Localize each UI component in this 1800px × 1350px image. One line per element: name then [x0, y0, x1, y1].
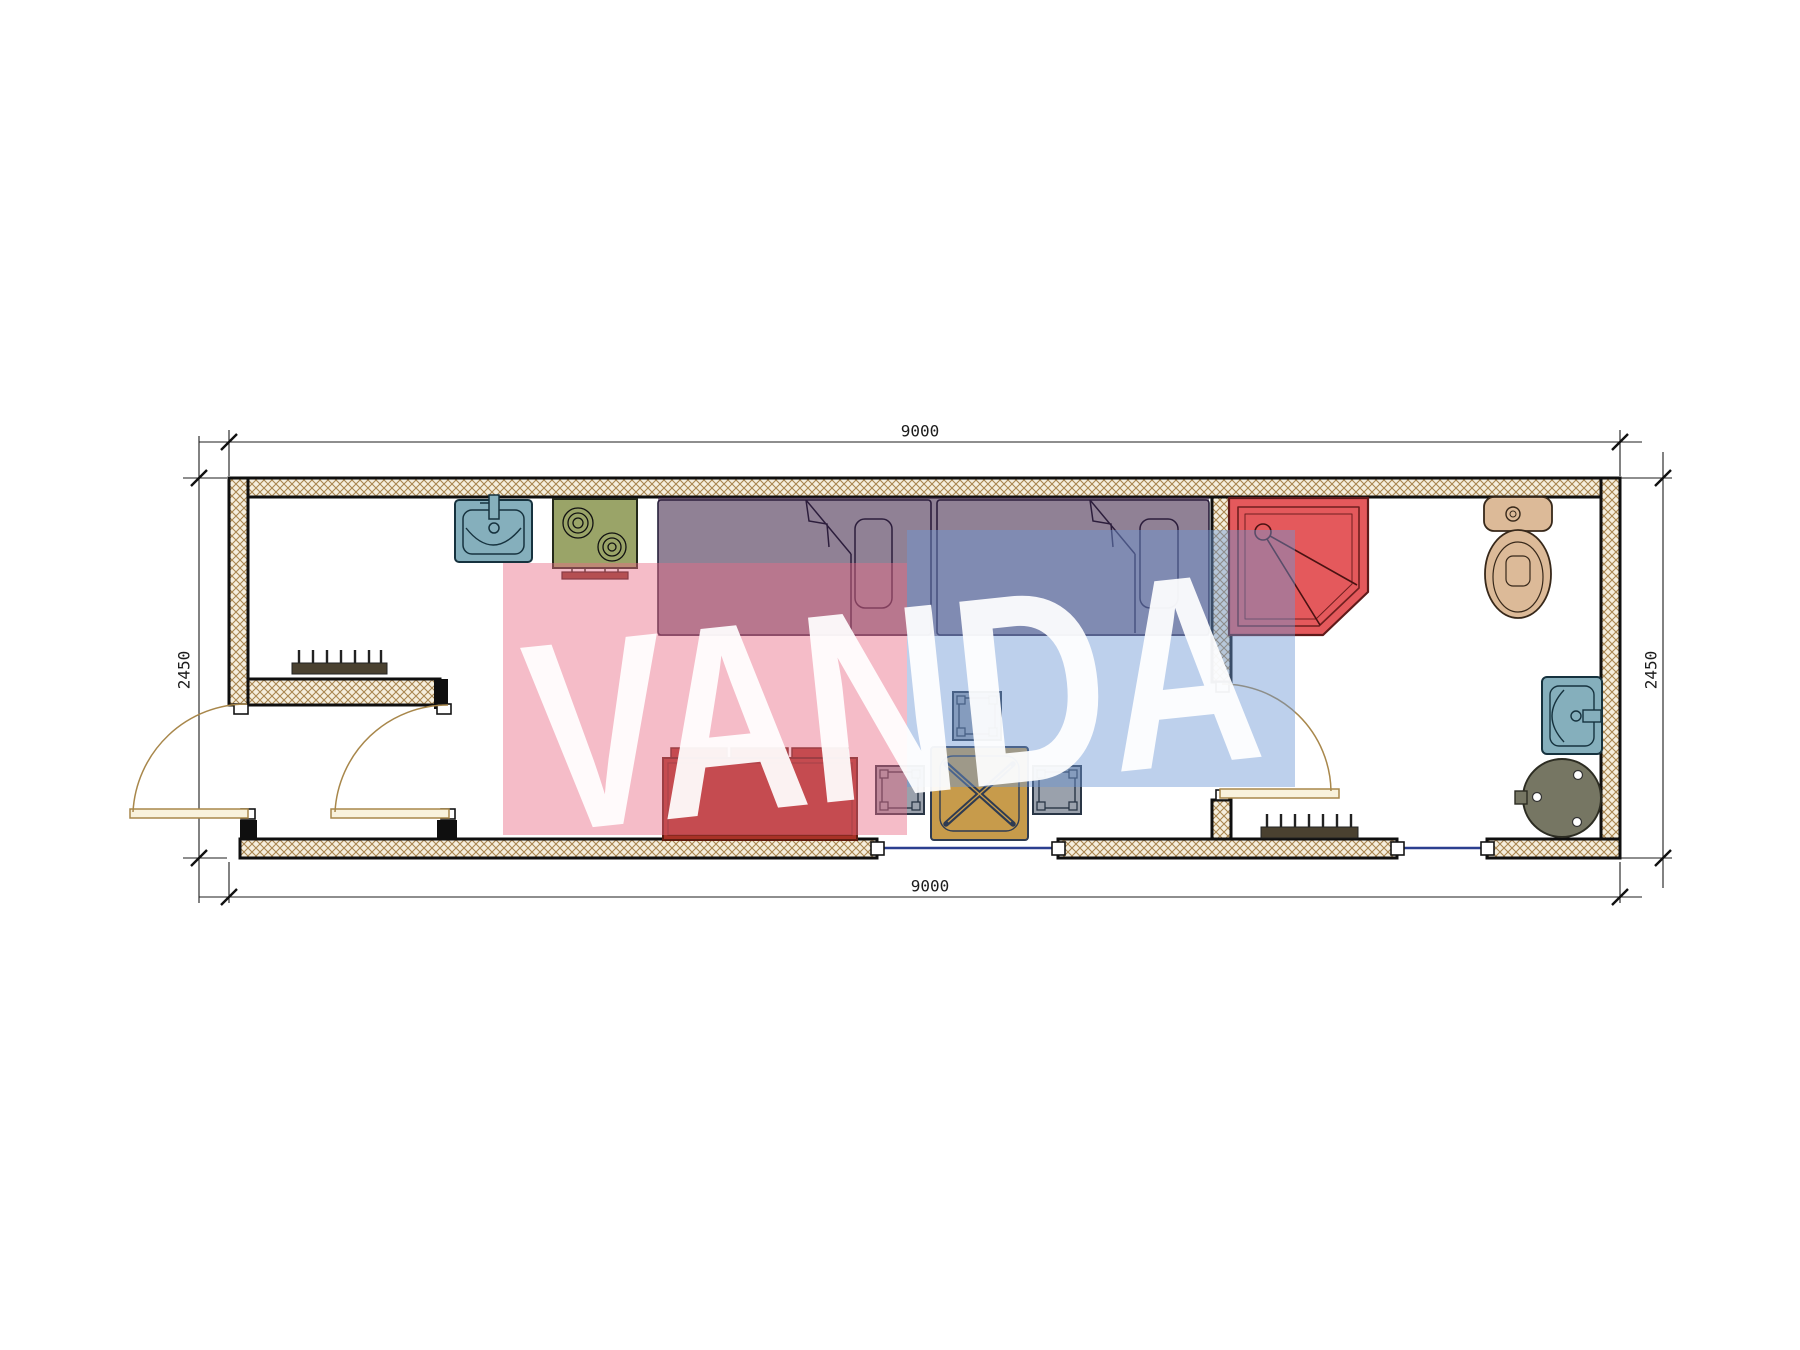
window-cap — [1391, 842, 1404, 855]
water-heater-icon — [1515, 759, 1601, 837]
window-cap — [1481, 842, 1494, 855]
jamb-bottom-mid — [437, 820, 457, 840]
entry-door-swing — [133, 704, 247, 812]
door-stop — [234, 704, 248, 714]
toilet-icon — [1484, 497, 1552, 618]
watermark-text: VANDA — [514, 530, 1271, 875]
stove-icon — [553, 499, 637, 579]
wall-vestibule — [248, 679, 440, 705]
oven-handle — [562, 572, 628, 579]
floor-plan-canvas: VANDA 9000 9000 2450 2450 — [0, 0, 1800, 1350]
wall-top — [229, 478, 1620, 497]
wall-bottom-b — [1058, 839, 1397, 858]
dim-label-right: 2450 — [1642, 651, 1661, 690]
wall-right — [1601, 478, 1620, 858]
entry-door-leaf — [130, 809, 248, 818]
dim-label-top: 9000 — [901, 422, 940, 441]
radiator-vestibule — [292, 650, 387, 674]
wall-bottom-c — [1487, 839, 1620, 858]
radiator-bathroom — [1261, 814, 1358, 838]
vestibule-door-swing — [335, 705, 448, 812]
kitchen-sink-icon — [455, 495, 532, 562]
dim-label-left: 2450 — [175, 651, 194, 690]
window-cap — [1052, 842, 1065, 855]
wall-left — [229, 478, 248, 705]
vestibule-door-leaf — [331, 809, 449, 818]
washbasin-icon — [1542, 677, 1602, 754]
jamb-bottom-left — [240, 820, 257, 840]
dim-label-bottom: 9000 — [911, 877, 950, 896]
